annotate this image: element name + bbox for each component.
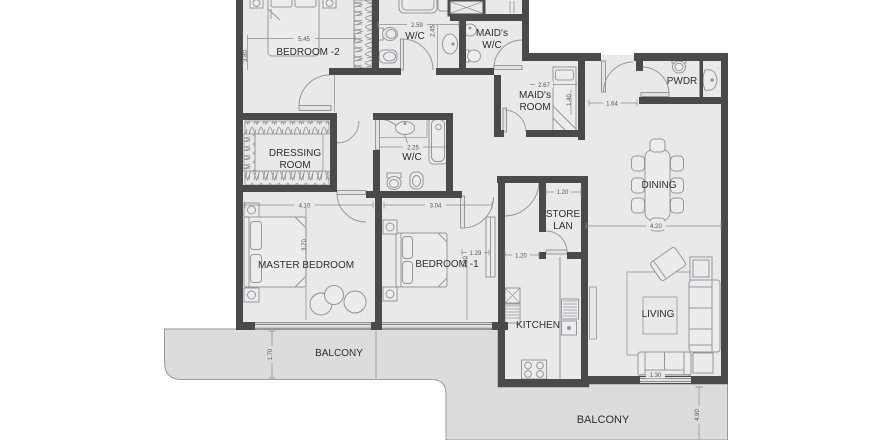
svg-text:5.45: 5.45 xyxy=(298,37,310,43)
svg-text:3.70: 3.70 xyxy=(302,239,308,251)
svg-text:W/C: W/C xyxy=(405,31,424,42)
svg-text:3.80: 3.80 xyxy=(243,50,249,62)
svg-text:BALCONY: BALCONY xyxy=(577,414,630,426)
svg-text:1.40: 1.40 xyxy=(567,94,573,106)
svg-text:1.20: 1.20 xyxy=(557,190,569,196)
svg-text:DINING: DINING xyxy=(642,180,677,191)
svg-text:1.70: 1.70 xyxy=(268,348,274,360)
svg-text:2.45: 2.45 xyxy=(431,25,437,37)
svg-text:KITCHEN: KITCHEN xyxy=(516,320,560,331)
svg-text:MAID's: MAID's xyxy=(476,28,508,39)
svg-text:4.10: 4.10 xyxy=(299,204,311,210)
svg-text:DRESSING: DRESSING xyxy=(269,148,321,159)
svg-text:MAID's: MAID's xyxy=(519,90,551,101)
svg-text:1.20: 1.20 xyxy=(515,254,527,260)
svg-text:PWDR: PWDR xyxy=(667,76,698,87)
svg-text:STORE: STORE xyxy=(546,209,581,220)
svg-text:1.29: 1.29 xyxy=(470,251,482,257)
svg-text:4.20: 4.20 xyxy=(650,224,662,230)
svg-text:1.64: 1.64 xyxy=(606,102,618,108)
svg-text:ROOM: ROOM xyxy=(519,102,550,113)
svg-text:W/C: W/C xyxy=(402,152,421,163)
svg-text:4.90: 4.90 xyxy=(695,409,701,421)
svg-text:LAN: LAN xyxy=(553,221,572,232)
svg-text:BALCONY: BALCONY xyxy=(315,348,363,359)
svg-text:1.30: 1.30 xyxy=(650,373,662,379)
svg-text:BEDROOM -1: BEDROOM -1 xyxy=(415,259,479,270)
svg-text:2.59: 2.59 xyxy=(411,23,423,29)
svg-text:ROOM: ROOM xyxy=(279,160,310,171)
svg-text:LIVING: LIVING xyxy=(642,309,675,320)
svg-text:3.04: 3.04 xyxy=(430,204,442,210)
svg-text:W/C: W/C xyxy=(482,40,501,51)
svg-text:MASTER BEDROOM: MASTER BEDROOM xyxy=(258,260,354,271)
svg-text:2.67: 2.67 xyxy=(538,83,550,89)
svg-text:BEDROOM -2: BEDROOM -2 xyxy=(276,47,340,58)
svg-text:2.25: 2.25 xyxy=(407,146,419,152)
